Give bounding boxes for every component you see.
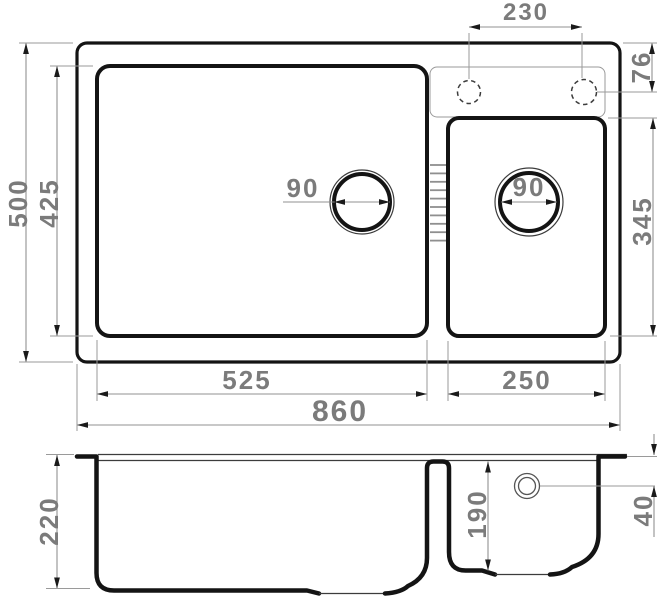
drawing-canvas: 230 76 345 500 425	[0, 0, 657, 600]
dimension-small-bowl-height: 190	[462, 462, 492, 571]
dim-label-525: 525	[222, 365, 271, 395]
dim-label-76: 76	[626, 51, 656, 84]
front-view: 220 190 40	[34, 434, 657, 594]
dimension-main-bowl-depth: 425	[34, 66, 93, 336]
faucet-hole-right	[572, 80, 597, 105]
dim-label-230: 230	[503, 0, 549, 26]
dim-label-220: 220	[34, 496, 64, 545]
main-bowl-outline	[97, 66, 427, 336]
main-bowl-profile-left	[77, 457, 319, 594]
section-drain	[515, 474, 540, 499]
dim-label-90-small: 90	[513, 172, 546, 202]
faucet-hole-left	[458, 81, 481, 104]
divider-ribs	[430, 165, 446, 241]
small-bowl-outline	[448, 118, 605, 336]
small-bowl-profile-right	[550, 457, 625, 575]
dim-label-500: 500	[3, 178, 33, 227]
sink-dimension-drawing: 230 76 345 500 425	[0, 0, 657, 600]
dim-label-250: 250	[502, 365, 551, 395]
dimension-small-bowl-width: 250	[448, 341, 605, 401]
dim-label-190: 190	[462, 489, 492, 538]
dimension-small-bowl-length: 345	[608, 118, 657, 336]
dimension-main-bowl-height: 220	[34, 455, 90, 589]
dimension-small-drain: 90	[501, 172, 557, 202]
dimension-faucet-offset: 76	[597, 43, 657, 92]
dim-label-860: 860	[312, 395, 368, 428]
top-view: 230 76 345 500 425	[3, 0, 657, 431]
dim-label-425: 425	[34, 178, 64, 227]
dim-label-90-main: 90	[287, 173, 320, 203]
dim-label-345: 345	[627, 196, 657, 245]
faucet-deck-outline	[430, 67, 605, 117]
dimension-main-bowl-width: 525	[97, 340, 427, 401]
dim-label-40: 40	[628, 494, 657, 527]
